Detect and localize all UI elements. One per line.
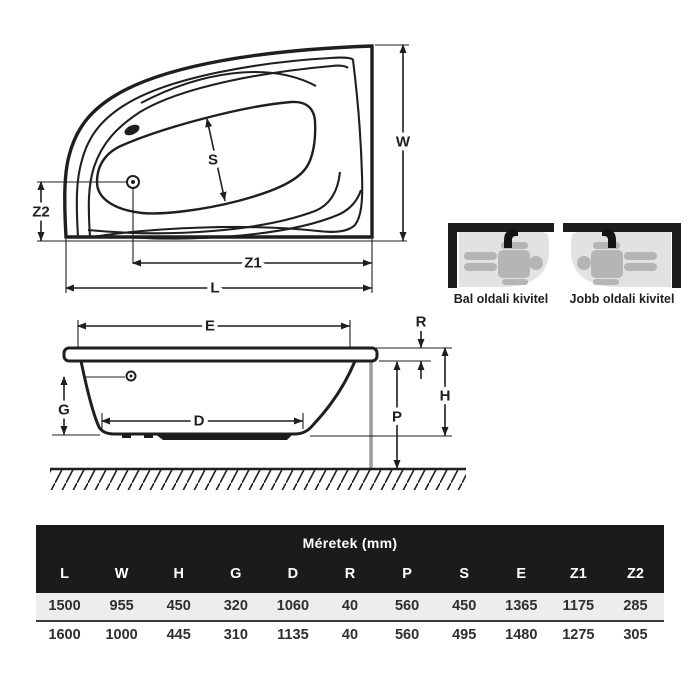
- variant-right-label: Jobb oldali kivitel: [570, 292, 675, 306]
- table-cell: 955: [93, 593, 150, 620]
- side-view: E R H P G D: [50, 314, 466, 491]
- table-cell: 305: [607, 622, 664, 649]
- tub-foot: [122, 433, 131, 438]
- column-header-r: R: [321, 566, 378, 582]
- drain-icon-side: [83, 372, 136, 381]
- dim-label-g: G: [58, 402, 70, 419]
- variant-right-pictogram: [563, 223, 681, 288]
- table-cell: 560: [379, 622, 436, 649]
- dim-label-w: W: [396, 134, 411, 151]
- column-header-z1: Z1: [550, 566, 607, 582]
- table-cell: 1000: [93, 622, 150, 649]
- column-header-g: G: [207, 566, 264, 582]
- dim-label-r: R: [416, 314, 427, 331]
- wall-left: [448, 223, 457, 288]
- dim-label-z1: Z1: [244, 255, 262, 272]
- column-header-d: D: [264, 566, 321, 582]
- seat-line-1: [88, 172, 340, 233]
- variant-left-pictogram: [448, 223, 554, 288]
- table-cell: 1135: [264, 622, 321, 649]
- product-datasheet: S W Z2 Z1 L: [0, 0, 700, 700]
- table-cell: 1365: [493, 593, 550, 620]
- ground-hatching: [50, 470, 466, 490]
- column-header-p: P: [379, 566, 436, 582]
- table-cell: 40: [321, 622, 378, 649]
- table-cell: 560: [379, 593, 436, 620]
- dim-label-e: E: [205, 318, 215, 335]
- table-cell: 40: [321, 593, 378, 620]
- table-cell: 1480: [493, 622, 550, 649]
- tub-rim-profile: [64, 348, 377, 361]
- table-header: Méretek (mm) L W H G D R P S E Z1 Z2: [36, 525, 664, 593]
- overflow-icon: [123, 123, 141, 138]
- table-cell: 450: [436, 593, 493, 620]
- dim-label-l: L: [210, 280, 219, 297]
- dim-label-h: H: [440, 388, 451, 405]
- table-cell: 320: [207, 593, 264, 620]
- column-header-e: E: [493, 566, 550, 582]
- table-column-headers: L W H G D R P S E Z1 Z2: [36, 566, 664, 582]
- technical-drawing: S W Z2 Z1 L: [0, 0, 700, 520]
- column-header-z2: Z2: [607, 566, 664, 582]
- dim-label-d: D: [194, 413, 205, 430]
- variant-left-label: Bal oldali kivitel: [454, 292, 548, 306]
- tub-foot: [144, 433, 153, 438]
- plan-view: S W Z2 Z1 L: [32, 45, 411, 297]
- table-cell: 285: [607, 593, 664, 620]
- dim-label-p: P: [392, 409, 402, 426]
- wall-top: [563, 223, 681, 232]
- wall-top: [448, 223, 554, 232]
- tub-base-strip: [155, 434, 293, 440]
- tub-body-profile: [81, 361, 355, 434]
- table-cell: 450: [150, 593, 207, 620]
- table-cell: 1600: [36, 622, 93, 649]
- column-header-s: S: [436, 566, 493, 582]
- dim-label-z2: Z2: [32, 204, 50, 221]
- table-cell: 1500: [36, 593, 93, 620]
- wall-right: [672, 223, 681, 288]
- drain-icon: [127, 176, 139, 188]
- table-row: 1600 1000 445 310 1135 40 560 495 1480 1…: [36, 620, 664, 649]
- table-title: Méretek (mm): [36, 535, 664, 551]
- dim-label-s: S: [208, 152, 218, 169]
- column-header-l: L: [36, 566, 93, 582]
- dimensions-table: Méretek (mm) L W H G D R P S E Z1 Z2 150…: [36, 525, 664, 649]
- column-header-w: W: [93, 566, 150, 582]
- column-header-h: H: [150, 566, 207, 582]
- table-cell: 1175: [550, 593, 607, 620]
- table-cell: 1060: [264, 593, 321, 620]
- table-cell: 495: [436, 622, 493, 649]
- table-row: 1500 955 450 320 1060 40 560 450 1365 11…: [36, 593, 664, 620]
- table-cell: 445: [150, 622, 207, 649]
- table-cell: 310: [207, 622, 264, 649]
- table-cell: 1275: [550, 622, 607, 649]
